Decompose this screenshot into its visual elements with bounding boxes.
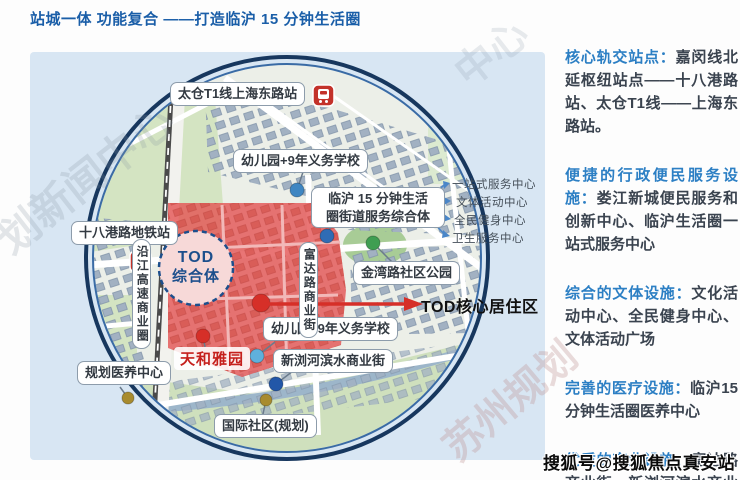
section-lead: 综合的文体设施： — [565, 285, 691, 302]
label-station-shanghai-east-road: 太仓T1线上海东路站 — [170, 82, 305, 106]
section-medical: 完善的医疗设施：临沪15分钟生活圈医养中心 — [565, 377, 738, 423]
label-tianhe-yayuan: 天和雅园 — [174, 347, 250, 370]
label-jinwan-park: 金湾路社区公园 — [353, 261, 460, 285]
section-rail-stations: 核心轨交站点：嘉闵线北延枢纽站点——十八港路站、太仓T1线——上海东路站。 — [565, 46, 738, 138]
riverside-dot — [269, 377, 283, 391]
label-yanjiang-business-vertical: 沿江高速商业圈 — [132, 239, 151, 349]
section-admin-services: 便捷的行政便民服务设施：娄江新城便民服务和创新中心、临沪生活圈一站式服务中心 — [565, 164, 738, 256]
school-bottom-dot — [250, 349, 264, 363]
callout-one-stop-service: 一站式服务中心 — [452, 176, 536, 192]
label-intl-community: 国际社区(规划) — [214, 414, 317, 438]
metro-icon-shanghai-east-road — [313, 85, 334, 106]
callout-health-service: 卫生服务中心 — [452, 230, 524, 246]
tod-complex-label: TOD 综合体 — [161, 248, 231, 287]
section-culture-sports: 综合的文体设施：文化活动中心、全民健身中心、文体活动广场 — [565, 282, 738, 351]
label-riverside-street: 新浏河滨水商业街 — [273, 349, 393, 373]
callout-culture-center: 文体活动中心 — [456, 194, 528, 210]
hub-dot — [320, 229, 334, 243]
label-fuda-street-vertical: 富达路商业街 — [299, 242, 318, 338]
callout-fitness-center: 全民健身中心 — [454, 212, 526, 228]
section-lead: 完善的医疗设施： — [565, 380, 690, 397]
section-lead: 核心轨交站点： — [565, 49, 676, 66]
sohu-account-watermark: 搜狐号@搜狐焦点真安站 — [543, 449, 735, 474]
intl-community-dot — [260, 394, 272, 406]
park-dot — [366, 236, 380, 250]
medical-dot — [122, 392, 134, 404]
label-service-hub: 临沪 15 分钟生活 圈街道服务综合体 — [311, 187, 445, 228]
school-top-dot — [290, 183, 304, 197]
tianhe-dot — [196, 329, 210, 343]
label-school-top: 幼儿园+9年义务学校 — [233, 149, 368, 173]
label-metro-shibagang: 十八港路地铁站 — [71, 221, 178, 245]
tod-core-residential-label: TOD核心居住区 — [421, 293, 539, 317]
facilities-text-column: 核心轨交站点：嘉闵线北延枢纽站点——十八港路站、太仓T1线——上海东路站。 便捷… — [565, 46, 738, 480]
page-title: 站城一体 功能复合 ——打造临沪 15 分钟生活圈 — [30, 8, 361, 29]
label-school-bottom: 幼儿园+9年义务学校 — [263, 317, 398, 341]
slide: 站城一体 功能复合 ——打造临沪 15 分钟生活圈 — [0, 0, 740, 480]
label-medical-center: 规划医养中心 — [77, 361, 171, 385]
